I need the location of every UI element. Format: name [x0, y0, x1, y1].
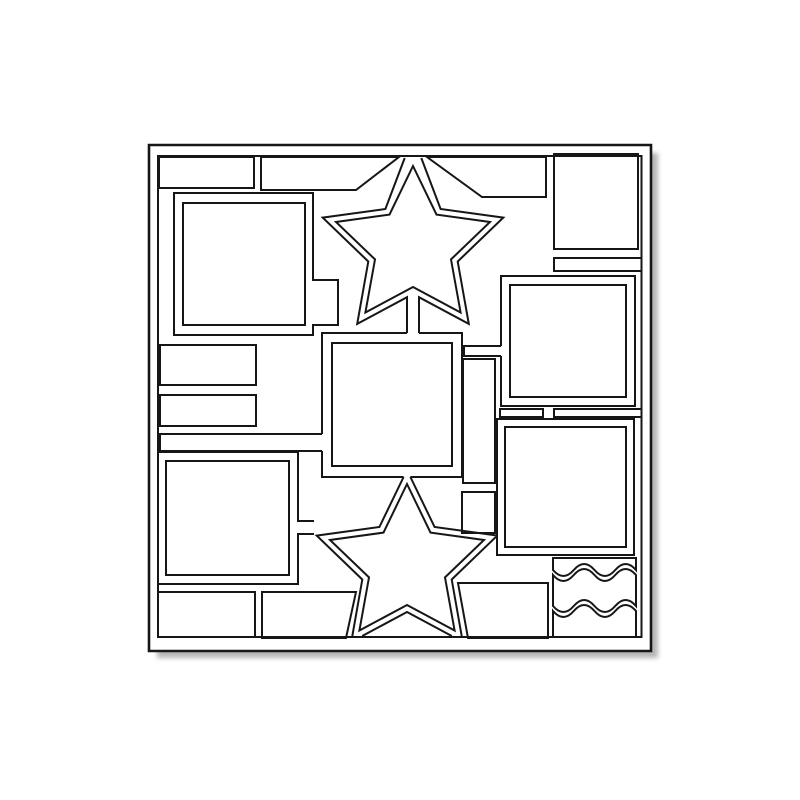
die-cut-template-illustration [0, 0, 800, 800]
die-cut-template-page [0, 0, 800, 800]
